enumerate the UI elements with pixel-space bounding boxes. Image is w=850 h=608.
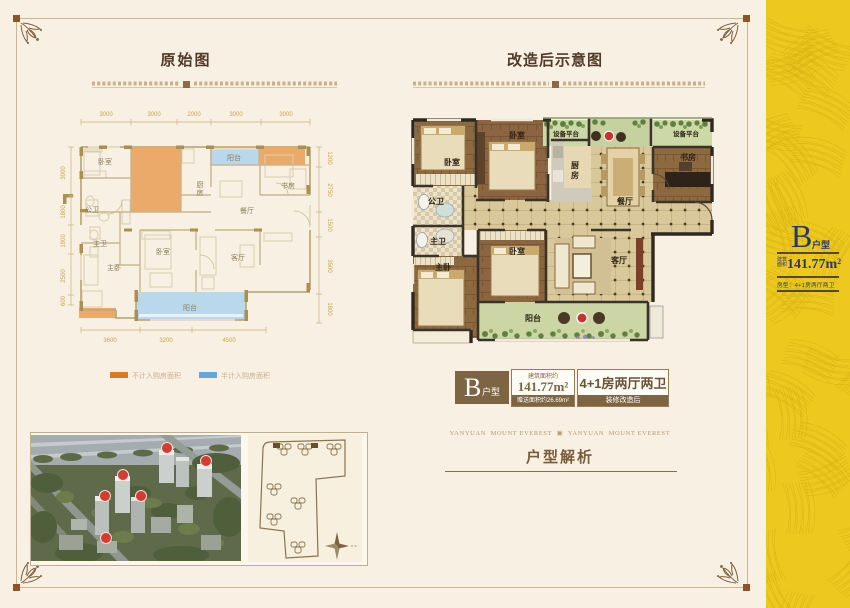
svg-text:3000: 3000 xyxy=(229,112,243,118)
svg-text:阳台: 阳台 xyxy=(227,153,241,162)
svg-text:公卫: 公卫 xyxy=(428,197,444,206)
svg-text:餐厅: 餐厅 xyxy=(240,206,254,215)
svg-text:主卧: 主卧 xyxy=(107,263,121,272)
svg-text:房: 房 xyxy=(197,188,204,197)
svg-text:卧室: 卧室 xyxy=(509,246,525,256)
svg-text:1500: 1500 xyxy=(326,218,332,232)
svg-text:卧室: 卧室 xyxy=(444,157,460,167)
svg-text:2000: 2000 xyxy=(187,112,201,118)
svg-text:设备平台: 设备平台 xyxy=(673,129,700,138)
svg-text:阳台: 阳台 xyxy=(183,303,197,312)
svg-text:3600: 3600 xyxy=(103,338,117,344)
svg-text:书房: 书房 xyxy=(281,181,295,190)
svg-text:3000: 3000 xyxy=(147,112,161,118)
svg-text:设备平台: 设备平台 xyxy=(553,129,580,138)
svg-text:3200: 3200 xyxy=(159,338,173,344)
svg-text:卧室: 卧室 xyxy=(509,130,525,140)
svg-text:3000: 3000 xyxy=(99,112,113,118)
svg-text:主卫: 主卫 xyxy=(93,239,107,248)
svg-text:房: 房 xyxy=(571,170,579,180)
svg-text:卧室: 卧室 xyxy=(98,157,112,166)
svg-text:餐厅: 餐厅 xyxy=(616,196,633,206)
svg-text:主卧: 主卧 xyxy=(435,262,451,272)
svg-text:客厅: 客厅 xyxy=(231,253,245,262)
svg-text:厨: 厨 xyxy=(197,181,204,189)
svg-text:2500: 2500 xyxy=(61,269,67,283)
svg-text:客厅: 客厅 xyxy=(610,255,627,265)
svg-text:1200: 1200 xyxy=(326,151,332,165)
svg-text:600: 600 xyxy=(61,295,67,306)
svg-text:4500: 4500 xyxy=(222,338,236,344)
svg-text:1800: 1800 xyxy=(326,302,332,316)
svg-text:卧室: 卧室 xyxy=(156,247,170,256)
svg-text:3000: 3000 xyxy=(279,112,293,118)
svg-text:1800: 1800 xyxy=(61,205,67,219)
svg-text:2750: 2750 xyxy=(326,183,332,197)
svg-text:3000: 3000 xyxy=(61,166,67,180)
svg-text:1800: 1800 xyxy=(61,234,67,248)
svg-text:公卫: 公卫 xyxy=(85,206,99,214)
svg-text:主卫: 主卫 xyxy=(430,236,446,246)
svg-text:3500: 3500 xyxy=(326,259,332,273)
svg-text:阳台: 阳台 xyxy=(525,313,541,323)
svg-text:书房: 书房 xyxy=(680,152,696,162)
svg-text:厨: 厨 xyxy=(571,160,579,170)
